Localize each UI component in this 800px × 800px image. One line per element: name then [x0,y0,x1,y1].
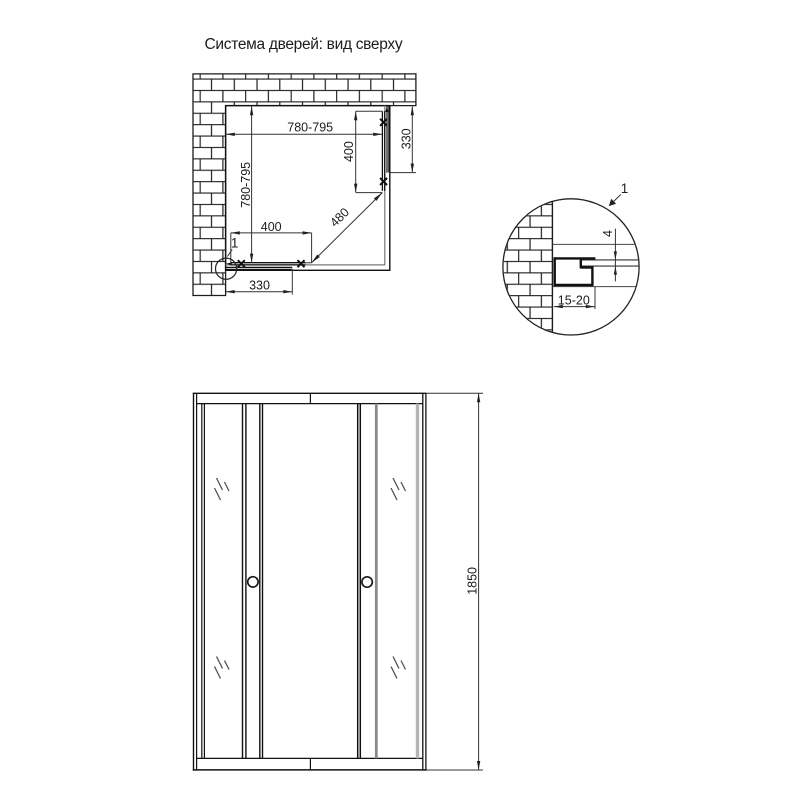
svg-text:4: 4 [601,230,615,237]
svg-text:Система дверей: вид сверху: Система дверей: вид сверху [205,36,403,53]
svg-text:1: 1 [621,181,629,196]
svg-text:1850: 1850 [465,567,479,595]
svg-text:780-795: 780-795 [239,162,253,208]
svg-text:15-20: 15-20 [558,293,590,307]
svg-text:330: 330 [249,279,270,293]
svg-text:1: 1 [231,236,239,251]
svg-text:330: 330 [399,128,413,149]
svg-text:400: 400 [261,220,282,234]
svg-text:780-795: 780-795 [287,121,333,135]
svg-text:400: 400 [342,141,356,162]
